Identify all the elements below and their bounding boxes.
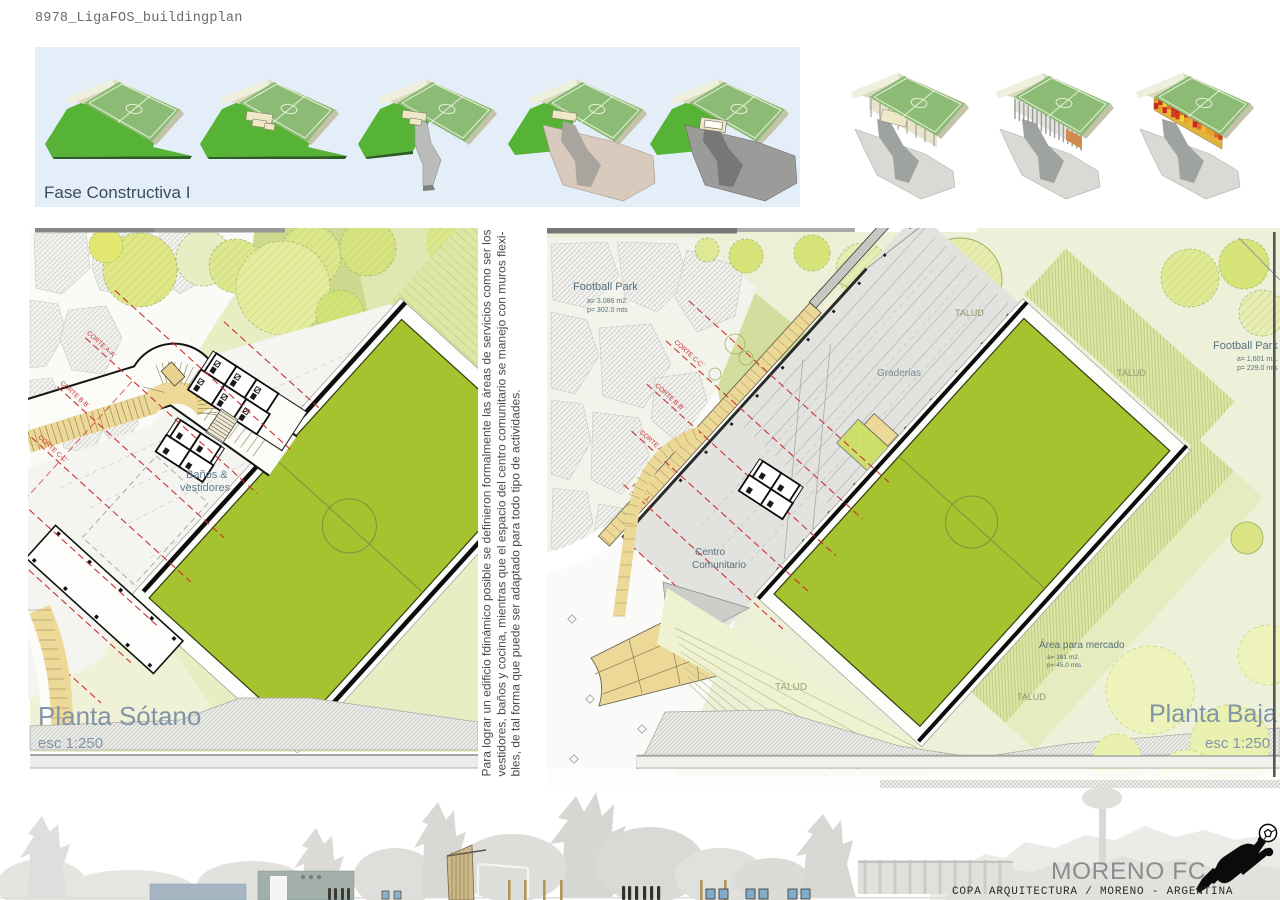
svg-text:Planta Sótano: Planta Sótano	[38, 701, 201, 731]
svg-text:Football Park: Football Park	[573, 281, 638, 293]
svg-text:TALUD: TALUD	[775, 682, 807, 693]
svg-text:Área para mercado: Área para mercado	[1039, 638, 1125, 651]
svg-text:esc 1:250: esc 1:250	[38, 735, 103, 752]
svg-text:Baños &: Baños &	[186, 469, 228, 481]
svg-text:vestidores: vestidores	[180, 482, 231, 494]
svg-text:p= 45.0 mts: p= 45.0 mts	[1047, 662, 1082, 669]
svg-text:Centro: Centro	[695, 547, 725, 558]
svg-text:a= 1,601 m2.: a= 1,601 m2.	[1237, 356, 1278, 363]
svg-text:TALUD: TALUD	[1117, 368, 1146, 378]
svg-text:p= 302.0 mts: p= 302.0 mts	[587, 307, 628, 314]
svg-text:p= 229.0 mts: p= 229.0 mts	[1237, 365, 1278, 372]
svg-text:TALUD: TALUD	[1017, 692, 1046, 702]
svg-text:TALUD: TALUD	[955, 308, 984, 318]
svg-text:Planta Baja: Planta Baja	[1149, 700, 1277, 728]
svg-text:a= 381 m2.: a= 381 m2.	[1047, 654, 1080, 661]
svg-text:Graderias: Graderias	[877, 368, 921, 379]
svg-text:esc 1:250: esc 1:250	[1205, 735, 1270, 752]
svg-text:Comunitario: Comunitario	[692, 560, 746, 571]
svg-text:Football Park: Football Park	[1213, 340, 1278, 352]
svg-text:a= 3.086 m2.: a= 3.086 m2.	[587, 298, 628, 305]
